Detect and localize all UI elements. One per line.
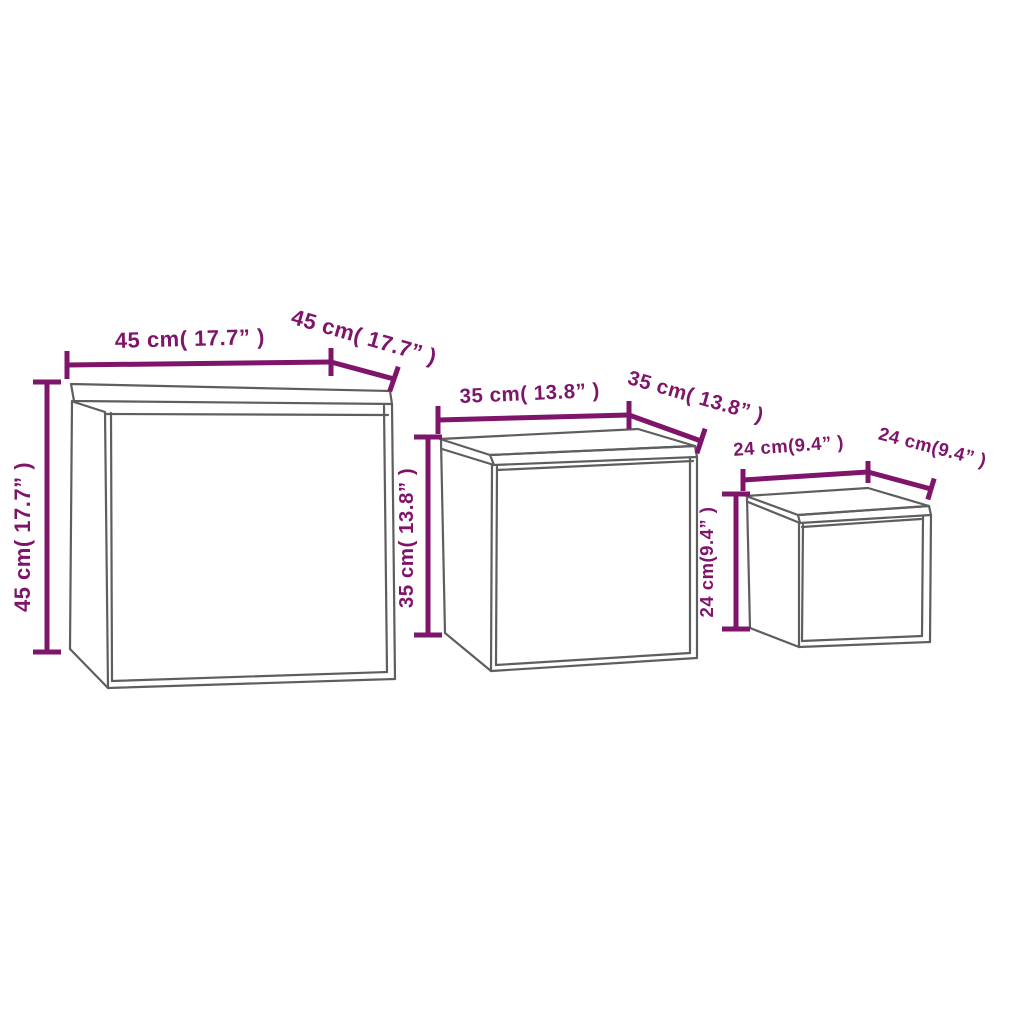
large-width-dimension: 45 cm( 17.7” ) [67, 324, 331, 379]
large-table-back-left-edge [70, 401, 72, 649]
medium-table-back-left-edge [441, 441, 445, 633]
small-table-bottom-edge-outer [799, 642, 930, 647]
large-height-dimension: 45 cm( 17.7” ) [10, 382, 61, 652]
medium-table-drawing [440, 429, 697, 671]
small-table-bottom-left-slant [750, 628, 799, 647]
medium-width-label: 35 cm( 13.8” ) [459, 379, 600, 408]
small-width-label: 24 cm(9.4” ) [733, 431, 845, 460]
small-depth-label: 24 cm(9.4” ) [876, 423, 989, 471]
medium-table-front-left-edge-inner [496, 467, 497, 665]
dimension-line [67, 362, 331, 365]
large-table-drawing [70, 384, 395, 688]
small-table-right-edge-outer [930, 515, 931, 642]
product-image: 45 cm( 17.7” ) 45 cm( 17.7” ) 45 cm( 17.… [0, 0, 1024, 1024]
medium-table-bottom-left-slant [445, 633, 491, 671]
small-table-right-edge-inner [922, 517, 923, 636]
dimension-diagram: 45 cm( 17.7” ) 45 cm( 17.7” ) 45 cm( 17.… [0, 0, 1024, 1024]
dimension-line [331, 362, 394, 379]
small-width-dimension: 24 cm(9.4” ) [733, 431, 868, 491]
small-table-drawing [746, 488, 931, 647]
small-depth-dimension: 24 cm(9.4” ) [868, 423, 989, 500]
large-table-front-left-edge-outer [105, 412, 108, 688]
large-table-carcass-top-edge [106, 414, 388, 415]
medium-table-front-left-edge-outer [491, 465, 492, 671]
small-height-dimension: 24 cm(9.4” ) [696, 494, 750, 629]
large-table-top-slab [71, 384, 392, 404]
large-table-right-edge-inner [384, 406, 387, 672]
small-table-front-left-edge-inner [802, 525, 803, 641]
small-table-top-face [746, 488, 929, 515]
small-table-bottom-edge-inner [802, 636, 922, 641]
large-depth-label: 45 cm( 17.7” ) [288, 304, 439, 369]
dimension-line [438, 415, 629, 420]
large-width-label: 45 cm( 17.7” ) [114, 324, 265, 353]
small-height-label: 24 cm(9.4” ) [696, 507, 717, 618]
large-table-front-left-edge-inner [111, 413, 112, 681]
dimension-line [868, 472, 931, 489]
large-table-bottom-left-slant [70, 649, 108, 688]
medium-table-carcass-top-edge [497, 461, 693, 470]
large-height-label: 45 cm( 17.7” ) [10, 462, 35, 612]
medium-depth-label: 35 cm( 13.8” ) [625, 366, 766, 427]
medium-table-slab-left-end [442, 449, 494, 465]
medium-height-label: 35 cm( 13.8” ) [395, 468, 418, 608]
small-table-back-left-edge [747, 498, 750, 628]
large-table-slab-left-end [74, 402, 105, 412]
large-depth-dimension: 45 cm( 17.7” ) [288, 304, 439, 391]
medium-height-dimension: 35 cm( 13.8” ) [395, 437, 442, 635]
dimension-line [743, 472, 868, 480]
medium-table-bottom-edge-inner [496, 653, 690, 665]
dimension-cap [928, 479, 934, 500]
medium-width-dimension: 35 cm( 13.8” ) [438, 379, 629, 434]
